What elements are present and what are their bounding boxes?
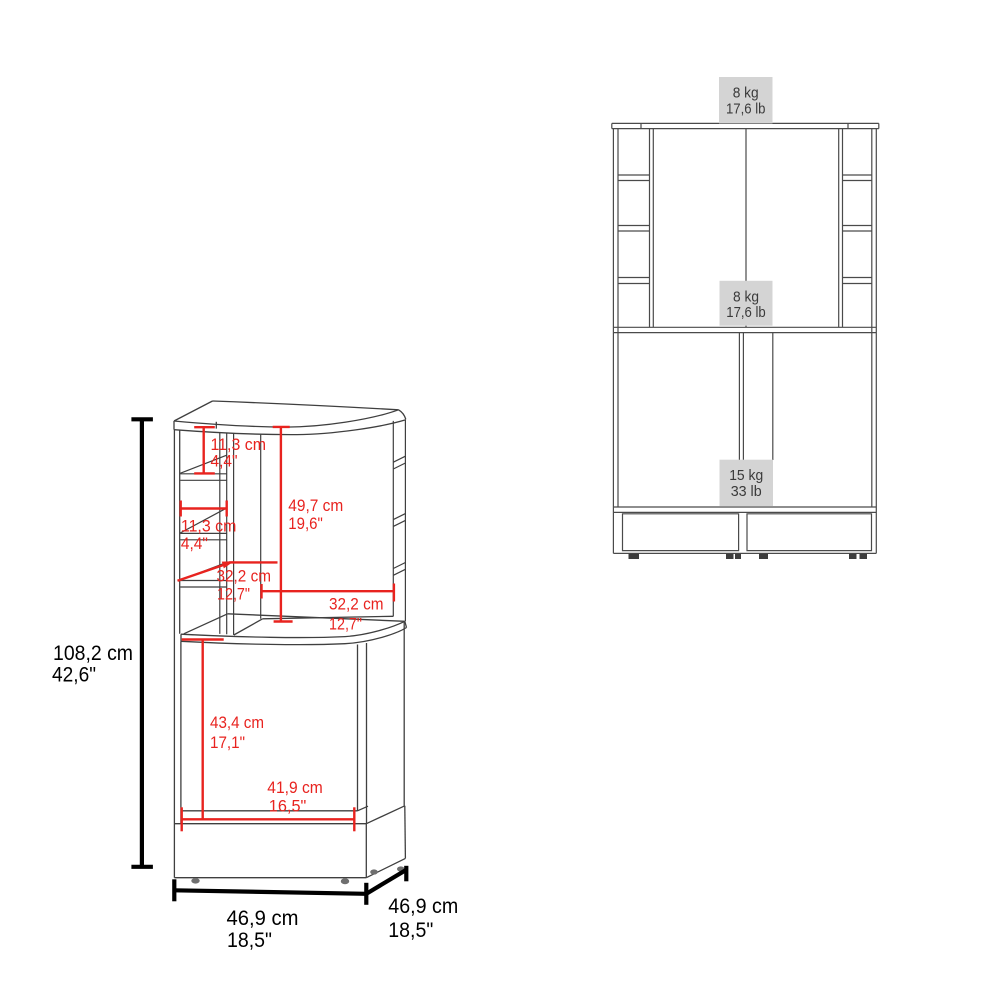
svg-text:32,2 cm: 32,2 cm <box>329 595 384 614</box>
svg-text:12,7": 12,7" <box>329 614 362 633</box>
svg-text:8 kg: 8 kg <box>733 288 759 305</box>
svg-text:11,3 cm: 11,3 cm <box>181 517 237 536</box>
svg-text:43,4 cm: 43,4 cm <box>210 713 264 732</box>
svg-text:49,7 cm: 49,7 cm <box>288 496 343 515</box>
svg-text:4,4": 4,4" <box>181 534 208 553</box>
svg-text:17,1": 17,1" <box>210 733 245 752</box>
svg-text:33 lb: 33 lb <box>731 483 762 500</box>
svg-text:18,5": 18,5" <box>227 928 272 952</box>
svg-text:16,5": 16,5" <box>269 796 307 815</box>
svg-text:46,9 cm: 46,9 cm <box>227 906 299 930</box>
svg-text:18,5": 18,5" <box>388 918 433 942</box>
svg-text:17,6 lb: 17,6 lb <box>726 100 766 117</box>
svg-text:15 kg: 15 kg <box>729 467 763 484</box>
svg-text:42,6": 42,6" <box>52 663 96 687</box>
svg-text:108,2 cm: 108,2 cm <box>53 641 133 665</box>
svg-text:4,4": 4,4" <box>211 452 238 471</box>
svg-text:17,6 lb: 17,6 lb <box>726 304 766 321</box>
svg-text:41,9 cm: 41,9 cm <box>267 778 323 797</box>
svg-text:19,6": 19,6" <box>288 514 323 533</box>
svg-text:46,9 cm: 46,9 cm <box>388 894 458 918</box>
svg-text:8 kg: 8 kg <box>733 85 759 102</box>
svg-text:32,2 cm: 32,2 cm <box>217 567 272 586</box>
svg-text:12,7": 12,7" <box>217 585 250 604</box>
